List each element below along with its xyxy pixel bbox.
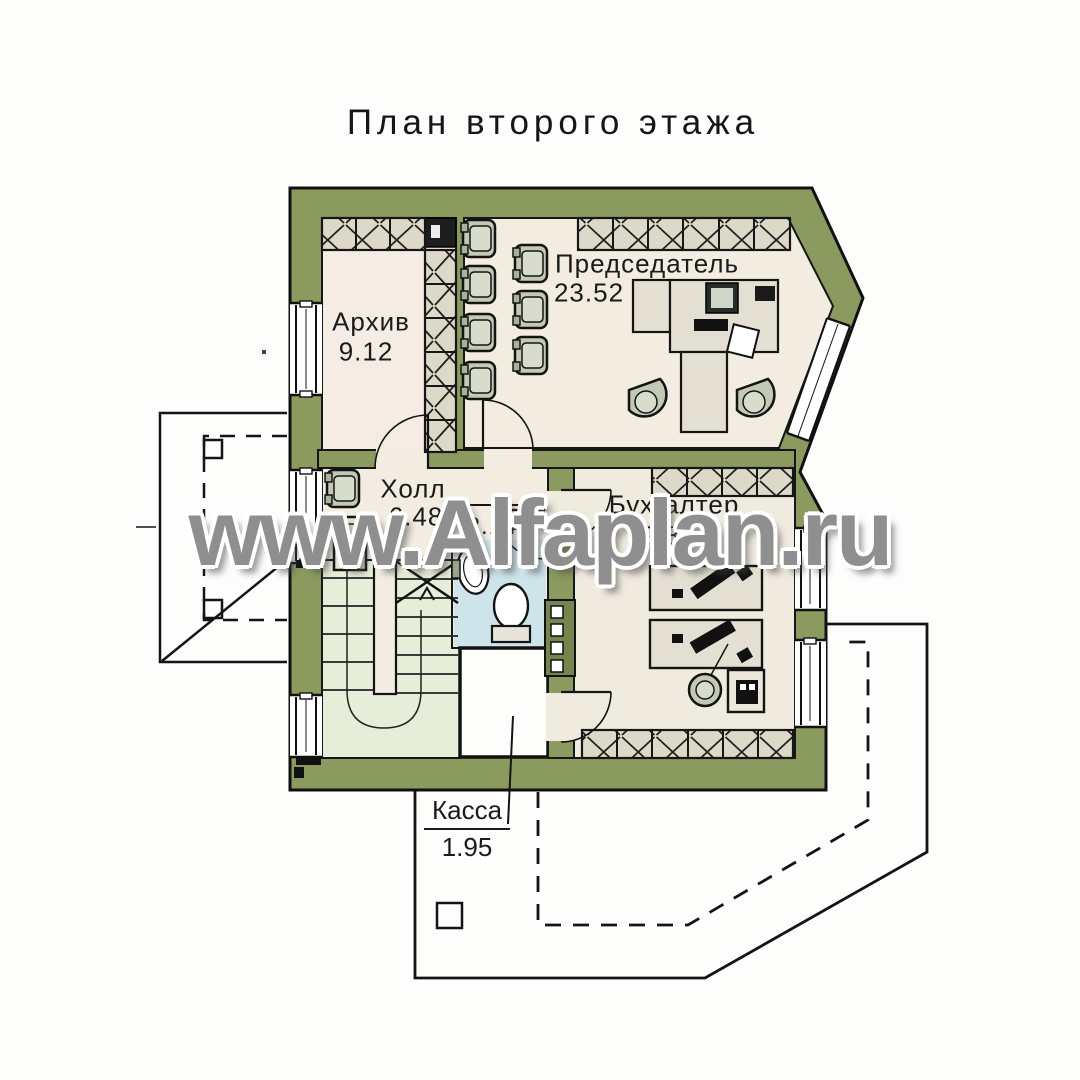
room-label-cashier: Касса 1.95 [424, 795, 510, 863]
room-label-chairman: Председатель [555, 249, 739, 280]
toilet-icon [492, 584, 530, 642]
office-chair-icon [689, 674, 721, 706]
paper-sheet [727, 324, 759, 357]
keyboard-icon [694, 319, 728, 331]
printer-icon [755, 286, 775, 301]
cashier-area: 1.95 [424, 832, 510, 863]
window-right-2 [795, 638, 826, 727]
desk-return [633, 280, 670, 332]
safe [425, 218, 456, 247]
window-left-3 [290, 693, 322, 757]
cashier-name: Касса [424, 795, 510, 830]
window-left-1 [290, 301, 322, 397]
room-label-archive: Архив [332, 307, 410, 338]
vent-shaft [545, 600, 575, 676]
floor-plan-page: План второго этажа Архив 9.12 Председате… [0, 0, 1080, 1080]
room-area-archive: 9.12 [339, 337, 394, 368]
room-cashier [460, 648, 548, 757]
room-area-chairman: 23.52 [554, 278, 624, 309]
watermark: www.Alfaplan.ru [189, 479, 892, 587]
conference-table [681, 352, 727, 432]
device-icon [736, 680, 758, 704]
page-title: План второго этажа [347, 103, 759, 143]
monitor-icon [706, 283, 738, 313]
